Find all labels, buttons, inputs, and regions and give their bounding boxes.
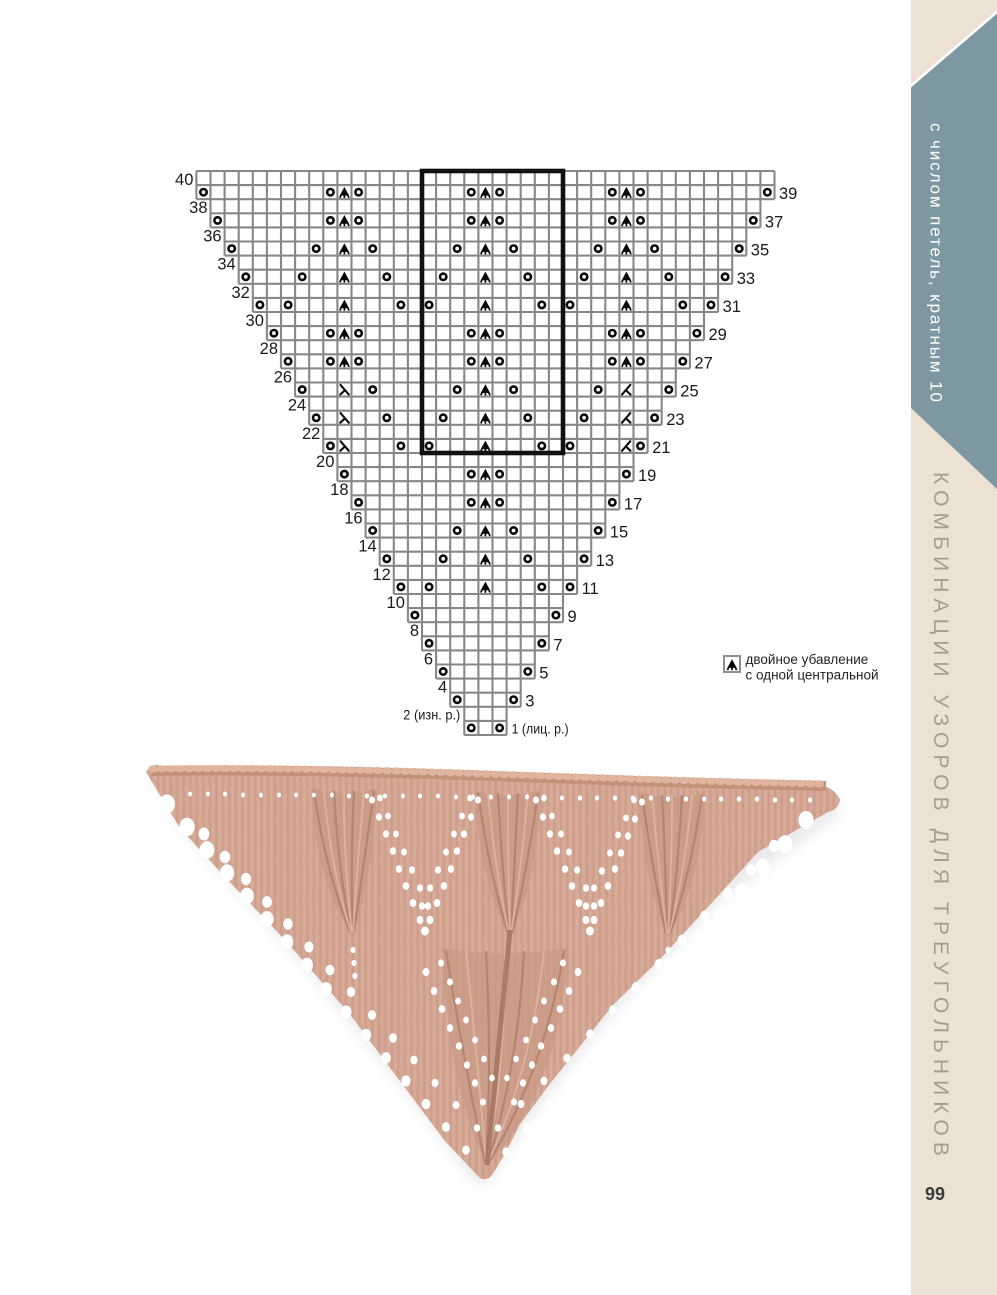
svg-text:34: 34 <box>217 256 235 274</box>
svg-text:33: 33 <box>737 270 755 288</box>
svg-text:12: 12 <box>372 566 390 584</box>
svg-text:20: 20 <box>316 453 334 471</box>
svg-text:39: 39 <box>779 185 797 203</box>
svg-text:с одной центральной: с одной центральной <box>746 668 879 683</box>
svg-text:17: 17 <box>624 495 642 513</box>
svg-text:8: 8 <box>410 622 419 640</box>
svg-text:14: 14 <box>358 538 376 556</box>
svg-text:3: 3 <box>525 693 534 711</box>
svg-text:30: 30 <box>246 312 264 330</box>
svg-text:35: 35 <box>751 242 769 260</box>
svg-text:двойное убавление: двойное убавление <box>746 652 869 667</box>
svg-text:32: 32 <box>231 284 249 302</box>
svg-text:31: 31 <box>723 298 741 316</box>
svg-text:7: 7 <box>553 636 562 654</box>
svg-text:38: 38 <box>189 199 207 217</box>
svg-text:10: 10 <box>387 594 405 612</box>
svg-text:26: 26 <box>274 368 292 386</box>
svg-text:29: 29 <box>709 326 727 344</box>
svg-text:с числом петель, кратным 10: с числом петель, кратным 10 <box>927 123 946 404</box>
svg-text:36: 36 <box>203 228 221 246</box>
svg-text:13: 13 <box>596 552 614 570</box>
svg-text:5: 5 <box>539 665 548 683</box>
svg-text:18: 18 <box>330 481 348 499</box>
svg-text:КОМБИНАЦИИ УЗОРОВ ДЛЯ ТРЕУГОЛЬ: КОМБИНАЦИИ УЗОРОВ ДЛЯ ТРЕУГОЛЬНИКОВ <box>929 472 952 1162</box>
svg-text:19: 19 <box>638 467 656 485</box>
svg-text:23: 23 <box>666 411 684 429</box>
svg-text:21: 21 <box>652 439 670 457</box>
svg-text:4: 4 <box>438 679 447 697</box>
svg-text:9: 9 <box>568 608 577 626</box>
svg-text:24: 24 <box>288 397 306 415</box>
svg-text:2 (изн. р.): 2 (изн. р.) <box>403 706 460 722</box>
svg-text:40: 40 <box>175 171 193 189</box>
svg-text:1 (лиц. р.): 1 (лиц. р.) <box>512 720 569 736</box>
svg-text:37: 37 <box>765 213 783 231</box>
svg-text:15: 15 <box>610 524 628 542</box>
svg-text:22: 22 <box>302 425 320 443</box>
svg-text:16: 16 <box>344 509 362 527</box>
svg-text:6: 6 <box>424 650 433 668</box>
svg-text:28: 28 <box>260 340 278 358</box>
svg-text:99: 99 <box>925 1184 945 1204</box>
svg-text:27: 27 <box>694 354 712 372</box>
svg-text:11: 11 <box>582 580 599 598</box>
svg-text:25: 25 <box>680 383 698 401</box>
